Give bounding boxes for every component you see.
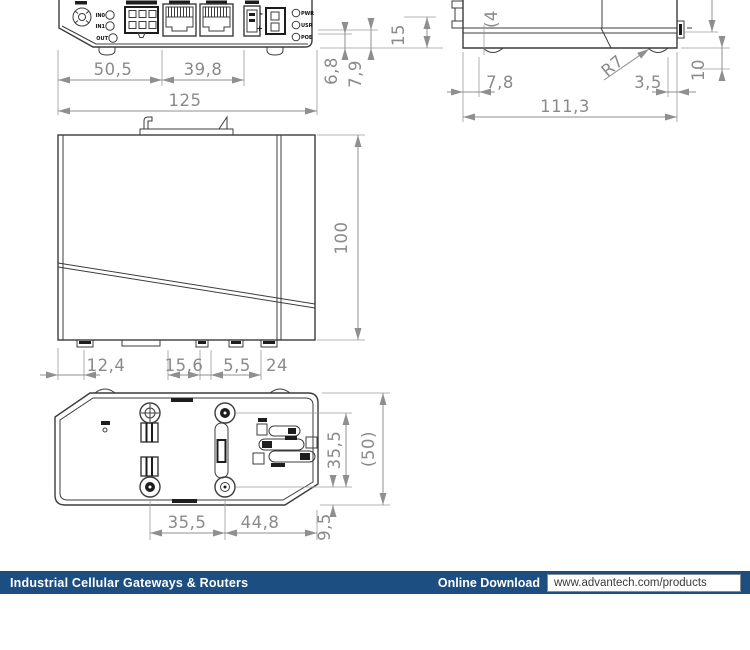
dim-35-5-h-label: 35,5	[168, 513, 207, 532]
status-leds: PWR USR POE	[292, 9, 314, 41]
label-edge-line	[58, 263, 315, 304]
dim-9-5-label: 9,5	[315, 513, 334, 541]
dim-5-5-label: 5,5	[223, 356, 251, 375]
dim-100-label: 100	[332, 222, 351, 255]
online-download-label: Online Download	[438, 576, 540, 590]
side-view-dimensions: (4 R7 7,8 3,5 111,3 10	[447, 0, 730, 122]
bottom-view-dimensions: 35,5 (50) 35,5 44,8 9,5	[150, 393, 390, 541]
download-url[interactable]: www.advantech.com/products	[547, 574, 741, 592]
datasheet-page: IN0 IN1 OUT	[0, 0, 750, 650]
front-panel-view: IN0 IN1 OUT	[59, 0, 314, 55]
din-rail-clip	[140, 117, 233, 135]
sim-slot-square-1	[257, 424, 267, 435]
dim-6-8-label: 6,8	[322, 57, 341, 85]
in0-hole-icon	[106, 11, 114, 19]
dim-3-5-label: 3,5	[634, 73, 662, 92]
dim-12-4-label: 12,4	[87, 356, 126, 375]
dim-7-9-label: 7,9	[346, 60, 365, 88]
footer-download-area: Online Download www.advantech.com/produc…	[438, 574, 750, 592]
io-label-in1: IN1	[95, 24, 105, 30]
antenna-connector-icon	[73, 1, 91, 26]
center-slot	[215, 423, 228, 478]
dim-7-8-label: 7,8	[486, 73, 514, 92]
poe-led-icon	[292, 33, 300, 41]
io-indicators: IN0 IN1 OUT	[95, 11, 117, 42]
eth0-port-icon	[163, 1, 196, 37]
led-label-poe: POE	[301, 35, 313, 41]
dim-125-label: 125	[169, 91, 202, 110]
dim-50-5-label: 50,5	[94, 60, 133, 79]
sim-slot-square-2	[306, 437, 317, 448]
screw-hole-top-left	[140, 403, 160, 423]
dim-15-6-label: 15,6	[165, 356, 204, 375]
eth1-port-icon	[200, 1, 233, 37]
dim-r7-label: R7	[598, 51, 628, 80]
pwr-led-icon	[292, 9, 300, 17]
reset-engraving	[101, 421, 110, 432]
terminal-block-icon	[125, 1, 158, 38]
bottom-view	[55, 389, 318, 505]
usr-led-icon	[292, 21, 300, 29]
dim-35-5-v-label: 35,5	[325, 431, 344, 470]
dim-111-3-label: 111,3	[540, 97, 590, 116]
face-view-feet	[77, 340, 277, 347]
sim-engravings	[253, 418, 317, 467]
led-label-pwr: PWR	[301, 11, 314, 17]
dim-44-8-label: 44,8	[241, 513, 280, 532]
dim-39-8-label: 39,8	[184, 60, 223, 79]
out-hole-icon	[109, 34, 117, 42]
dim-50-paren-label: (50)	[359, 431, 378, 467]
footer-title: Industrial Cellular Gateways & Routers	[0, 576, 248, 590]
din-clip-side	[452, 1, 463, 8]
sim-slot-square-3	[253, 453, 264, 464]
io-label-in0: IN0	[95, 13, 105, 19]
screw-hole-top-right	[215, 403, 235, 423]
foot-front-left	[99, 47, 115, 55]
dim-partial-label: (4	[482, 10, 501, 28]
technical-drawing: IN0 IN1 OUT	[0, 0, 750, 650]
in1-hole-icon	[106, 22, 114, 30]
dim-24-label: 24	[266, 356, 288, 375]
face-view	[58, 117, 315, 347]
vent-slots	[141, 423, 158, 476]
led-label-usr: USR	[301, 23, 313, 29]
dim-15-label: 15	[389, 24, 408, 46]
foot-front-right	[267, 47, 283, 55]
power-minus-mark: -	[260, 9, 263, 18]
screw-hole-bottom-right	[215, 477, 235, 497]
screw-hole-bottom-left	[140, 477, 160, 497]
io-label-out: OUT	[96, 36, 108, 42]
dim-10-label: 10	[689, 59, 708, 81]
power-plus-mark: +	[256, 24, 263, 33]
footer-bar: Industrial Cellular Gateways & Routers O…	[0, 571, 750, 594]
